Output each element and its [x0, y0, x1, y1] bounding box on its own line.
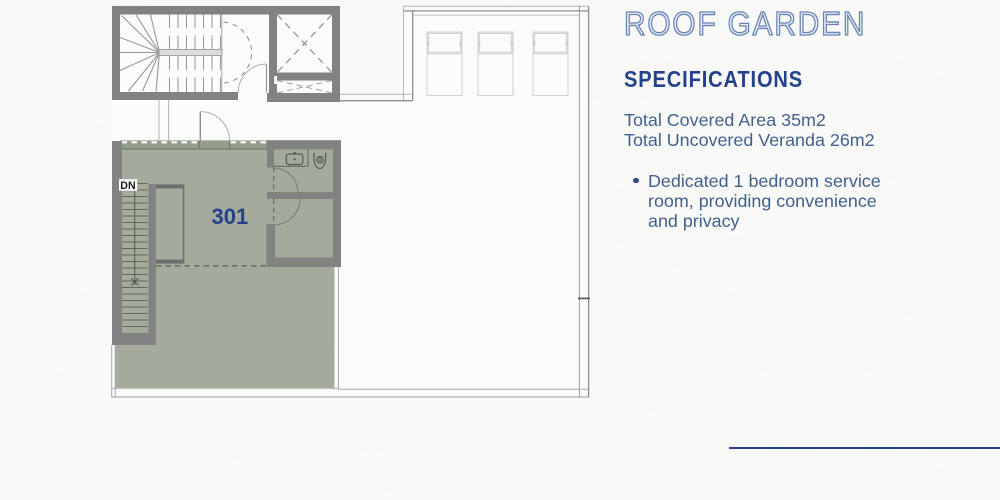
svg-text:301: 301	[212, 204, 249, 229]
svg-text:DN: DN	[120, 180, 135, 192]
